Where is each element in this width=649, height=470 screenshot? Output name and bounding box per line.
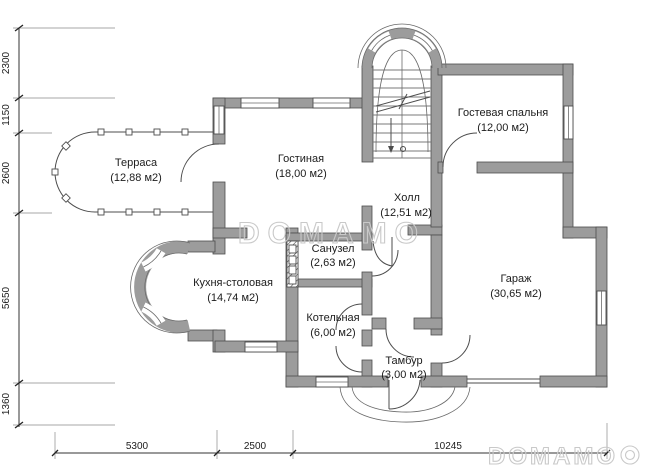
dim-left-2: 2600	[1, 161, 12, 184]
room-label-terrace: Терраса	[115, 157, 158, 169]
room-label-living: Гостиная	[278, 153, 324, 165]
boiler-window	[316, 377, 348, 387]
room-label-hall: Холл	[394, 192, 420, 204]
dimension-left: 2300 1150 2600 5650 1360	[1, 25, 115, 428]
room-area-terrace: (12,88 м2)	[110, 172, 162, 184]
room-area-boiler: (6,00 м2)	[310, 327, 355, 339]
floor-plan-drawing: 2300 1150 2600 5650 1360 5300 2500 10245…	[0, 0, 649, 470]
room-area-vestibule: (3,00 м2)	[381, 369, 426, 381]
room-label-boiler: Котельная	[306, 312, 359, 324]
room-label-garage: Гараж	[500, 273, 532, 285]
watermark-corner: DOMAMO	[488, 443, 639, 470]
dim-left-4: 1360	[1, 392, 12, 415]
room-label-vestibule: Тамбур	[385, 355, 422, 367]
dim-bottom-1: 2500	[244, 441, 267, 452]
room-label-kitchen: Кухня-столовая	[193, 277, 273, 289]
dim-left-1: 1150	[1, 104, 12, 126]
living-room-window-1	[241, 98, 279, 108]
dim-bottom-0: 5300	[126, 441, 149, 452]
bedroom-door-arc	[443, 133, 477, 167]
living-room-window-2	[313, 98, 350, 108]
living-room-west-window	[214, 106, 224, 134]
dim-left-0: 2300	[1, 51, 12, 74]
kitchen-window	[245, 342, 277, 352]
watermark-center: DOMAMO	[238, 217, 426, 250]
garage-window	[597, 291, 606, 325]
room-label-bedroom: Гостевая спальня	[458, 107, 549, 119]
entrance-door-arc	[389, 380, 420, 409]
svg-text:DOMAMO: DOMAMO	[238, 217, 426, 250]
room-area-bedroom: (12,00 м2)	[477, 122, 529, 134]
dim-bottom-2: 10245	[434, 441, 462, 452]
garage-side-door-arc	[442, 335, 470, 363]
dim-left-3: 5650	[1, 286, 12, 309]
floor-plan-page: 2300 1150 2600 5650 1360 5300 2500 10245…	[0, 0, 649, 470]
room-area-kitchen: (14,74 м2)	[207, 292, 259, 304]
svg-text:DOMAMO: DOMAMO	[488, 443, 618, 470]
room-area-living: (18,00 м2)	[275, 168, 327, 180]
vestibule-door-arc	[386, 329, 414, 357]
room-area-bathroom: (2,63 м2)	[310, 257, 355, 269]
room-area-garage: (30,65 м2)	[490, 288, 542, 300]
kitchen-bay-window	[131, 241, 190, 333]
staircase	[373, 50, 431, 158]
doors	[181, 133, 540, 409]
boiler-door-arc-2	[336, 346, 362, 372]
bedroom-window	[564, 106, 573, 139]
terrace-door-arc	[181, 144, 219, 182]
